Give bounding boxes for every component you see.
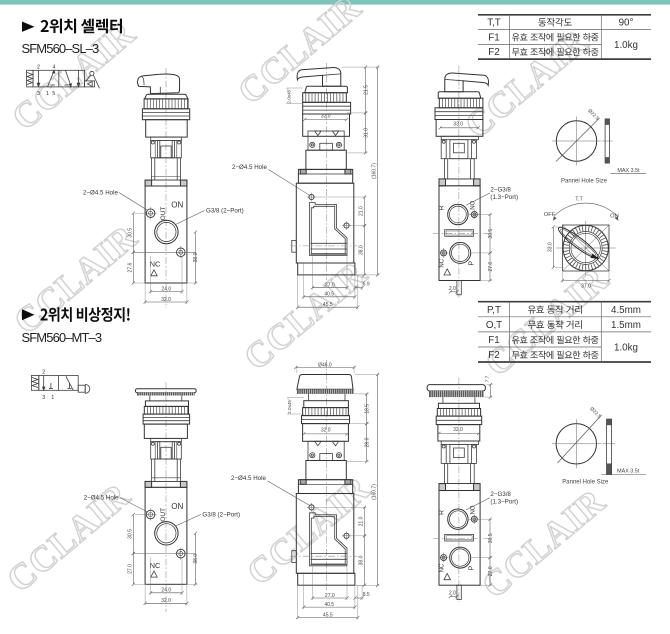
svg-text:2−G3/8: 2−G3/8 — [490, 491, 511, 498]
svg-text:30.5: 30.5 — [488, 229, 494, 239]
svg-text:38.0: 38.0 — [193, 554, 199, 564]
svg-text:32.0: 32.0 — [161, 297, 171, 303]
svg-text:ON: ON — [610, 214, 619, 220]
svg-text:3: 3 — [37, 91, 40, 97]
svg-text:1.5mm: 1.5mm — [611, 320, 641, 331]
svg-text:24.0: 24.0 — [161, 286, 171, 292]
svg-text:45.5: 45.5 — [323, 612, 333, 618]
svg-text:NO: NO — [471, 505, 477, 514]
svg-text:2−Ø4.5 Hole: 2−Ø4.5 Hole — [84, 495, 119, 502]
svg-text:F1: F1 — [488, 335, 499, 346]
svg-text:ON: ON — [171, 201, 183, 210]
svg-text:27.6: 27.6 — [128, 263, 134, 273]
svg-text:R: R — [439, 510, 446, 515]
svg-text:1.0kg: 1.0kg — [614, 342, 638, 353]
svg-text:30.5: 30.5 — [488, 533, 494, 543]
svg-text:P: P — [469, 565, 476, 570]
svg-text:30.5: 30.5 — [128, 529, 134, 539]
svg-text:27.0: 27.0 — [488, 566, 494, 576]
svg-text:F1: F1 — [488, 32, 499, 43]
svg-text:40.5: 40.5 — [324, 602, 334, 608]
svg-text:32.0: 32.0 — [321, 113, 331, 119]
svg-text:24.0: 24.0 — [161, 588, 171, 594]
svg-text:28.0: 28.0 — [365, 437, 371, 447]
svg-text:2.0: 2.0 — [449, 286, 456, 292]
svg-text:P,T: P,T — [487, 305, 501, 316]
svg-text:2−G3/8: 2−G3/8 — [490, 187, 511, 194]
svg-text:F2: F2 — [488, 47, 499, 58]
svg-text:31.0: 31.0 — [363, 128, 369, 138]
svg-text:21.0: 21.0 — [359, 516, 365, 526]
svg-text:27.0: 27.0 — [325, 593, 335, 599]
svg-text:1: 1 — [46, 91, 49, 97]
svg-text:F2: F2 — [488, 350, 499, 361]
svg-text:NC: NC — [440, 563, 446, 572]
svg-text:MAX 3.5t: MAX 3.5t — [617, 469, 640, 475]
svg-text:Ø46.0: Ø46.0 — [318, 362, 332, 368]
svg-text:8.5: 8.5 — [363, 592, 370, 598]
svg-text:(160.7): (160.7) — [371, 484, 377, 500]
svg-text:30.5: 30.5 — [128, 228, 134, 238]
svg-text:1: 1 — [51, 395, 54, 401]
svg-text:NC: NC — [440, 258, 446, 267]
svg-text:P: P — [469, 261, 476, 266]
svg-text:2.0x45°: 2.0x45° — [286, 88, 291, 104]
svg-text:90°: 90° — [619, 18, 634, 29]
svg-text:27.6: 27.6 — [488, 262, 494, 272]
svg-text:(160.7): (160.7) — [371, 163, 377, 179]
svg-text:NC: NC — [150, 561, 161, 570]
svg-text:2−Ø4.5 Hole: 2−Ø4.5 Hole — [232, 164, 267, 171]
svg-text:38.0: 38.0 — [359, 245, 365, 255]
svg-text:R: R — [439, 205, 446, 210]
svg-text:1.0kg: 1.0kg — [614, 40, 638, 51]
svg-text:21.0: 21.0 — [359, 206, 365, 216]
svg-text:Pannel Hole Size: Pannel Hole Size — [562, 480, 609, 486]
svg-text:32.0: 32.0 — [321, 428, 331, 434]
svg-text:40.5: 40.5 — [324, 292, 334, 298]
svg-text:2: 2 — [42, 369, 45, 375]
svg-text:ON: ON — [171, 502, 183, 511]
svg-text:7.7: 7.7 — [485, 375, 490, 382]
svg-text:(1.3−Port): (1.3−Port) — [490, 194, 518, 201]
svg-text:2−Ø4.5 Hole: 2−Ø4.5 Hole — [83, 189, 118, 196]
svg-text:45.5: 45.5 — [323, 302, 333, 308]
svg-text:2.0: 2.0 — [449, 591, 456, 597]
svg-text:O,T: O,T — [486, 320, 502, 331]
svg-text:37.0: 37.0 — [581, 284, 591, 290]
svg-text:OUT: OUT — [160, 508, 167, 522]
svg-text:G3/8 (2−Port): G3/8 (2−Port) — [202, 511, 240, 518]
svg-text:32.0: 32.0 — [161, 598, 171, 604]
svg-text:6.9: 6.9 — [363, 282, 370, 288]
svg-text:SFM560–SL–3: SFM560–SL–3 — [22, 41, 99, 56]
svg-text:Pannel Hole Size: Pannel Hole Size — [561, 179, 608, 185]
svg-text:27.0: 27.0 — [325, 283, 335, 289]
svg-text:27.0: 27.0 — [128, 564, 134, 574]
svg-text:33.0: 33.0 — [548, 242, 554, 252]
svg-text:38.0: 38.0 — [193, 252, 199, 262]
svg-text:NC: NC — [150, 260, 161, 269]
svg-text:(1.3−Port): (1.3−Port) — [490, 499, 518, 506]
svg-text:OUT: OUT — [160, 207, 167, 221]
svg-text:32.0: 32.0 — [453, 427, 463, 433]
svg-text:5: 5 — [52, 91, 55, 97]
svg-text:4: 4 — [53, 64, 56, 70]
svg-text:MAX 3.5t: MAX 3.5t — [617, 168, 640, 174]
svg-text:SFM560–MT–3: SFM560–MT–3 — [22, 330, 102, 345]
svg-text:18.5: 18.5 — [365, 404, 371, 414]
svg-text:38.0: 38.0 — [359, 555, 365, 565]
svg-text:21.5: 21.5 — [363, 85, 369, 95]
svg-text:G3/8 (2−Port): G3/8 (2−Port) — [206, 208, 244, 215]
svg-text:NO: NO — [471, 200, 477, 209]
svg-text:2−Ø4.5 Hole: 2−Ø4.5 Hole — [231, 475, 266, 482]
svg-text:3: 3 — [42, 395, 45, 401]
svg-text:33.0: 33.0 — [453, 122, 463, 128]
svg-text:T,T: T,T — [487, 18, 501, 29]
svg-text:2: 2 — [37, 64, 40, 70]
svg-text:T.T: T.T — [575, 197, 583, 203]
svg-text:4.5mm: 4.5mm — [611, 305, 641, 316]
svg-text:2.0x45°: 2.0x45° — [287, 398, 292, 414]
svg-text:OFF: OFF — [544, 212, 556, 218]
